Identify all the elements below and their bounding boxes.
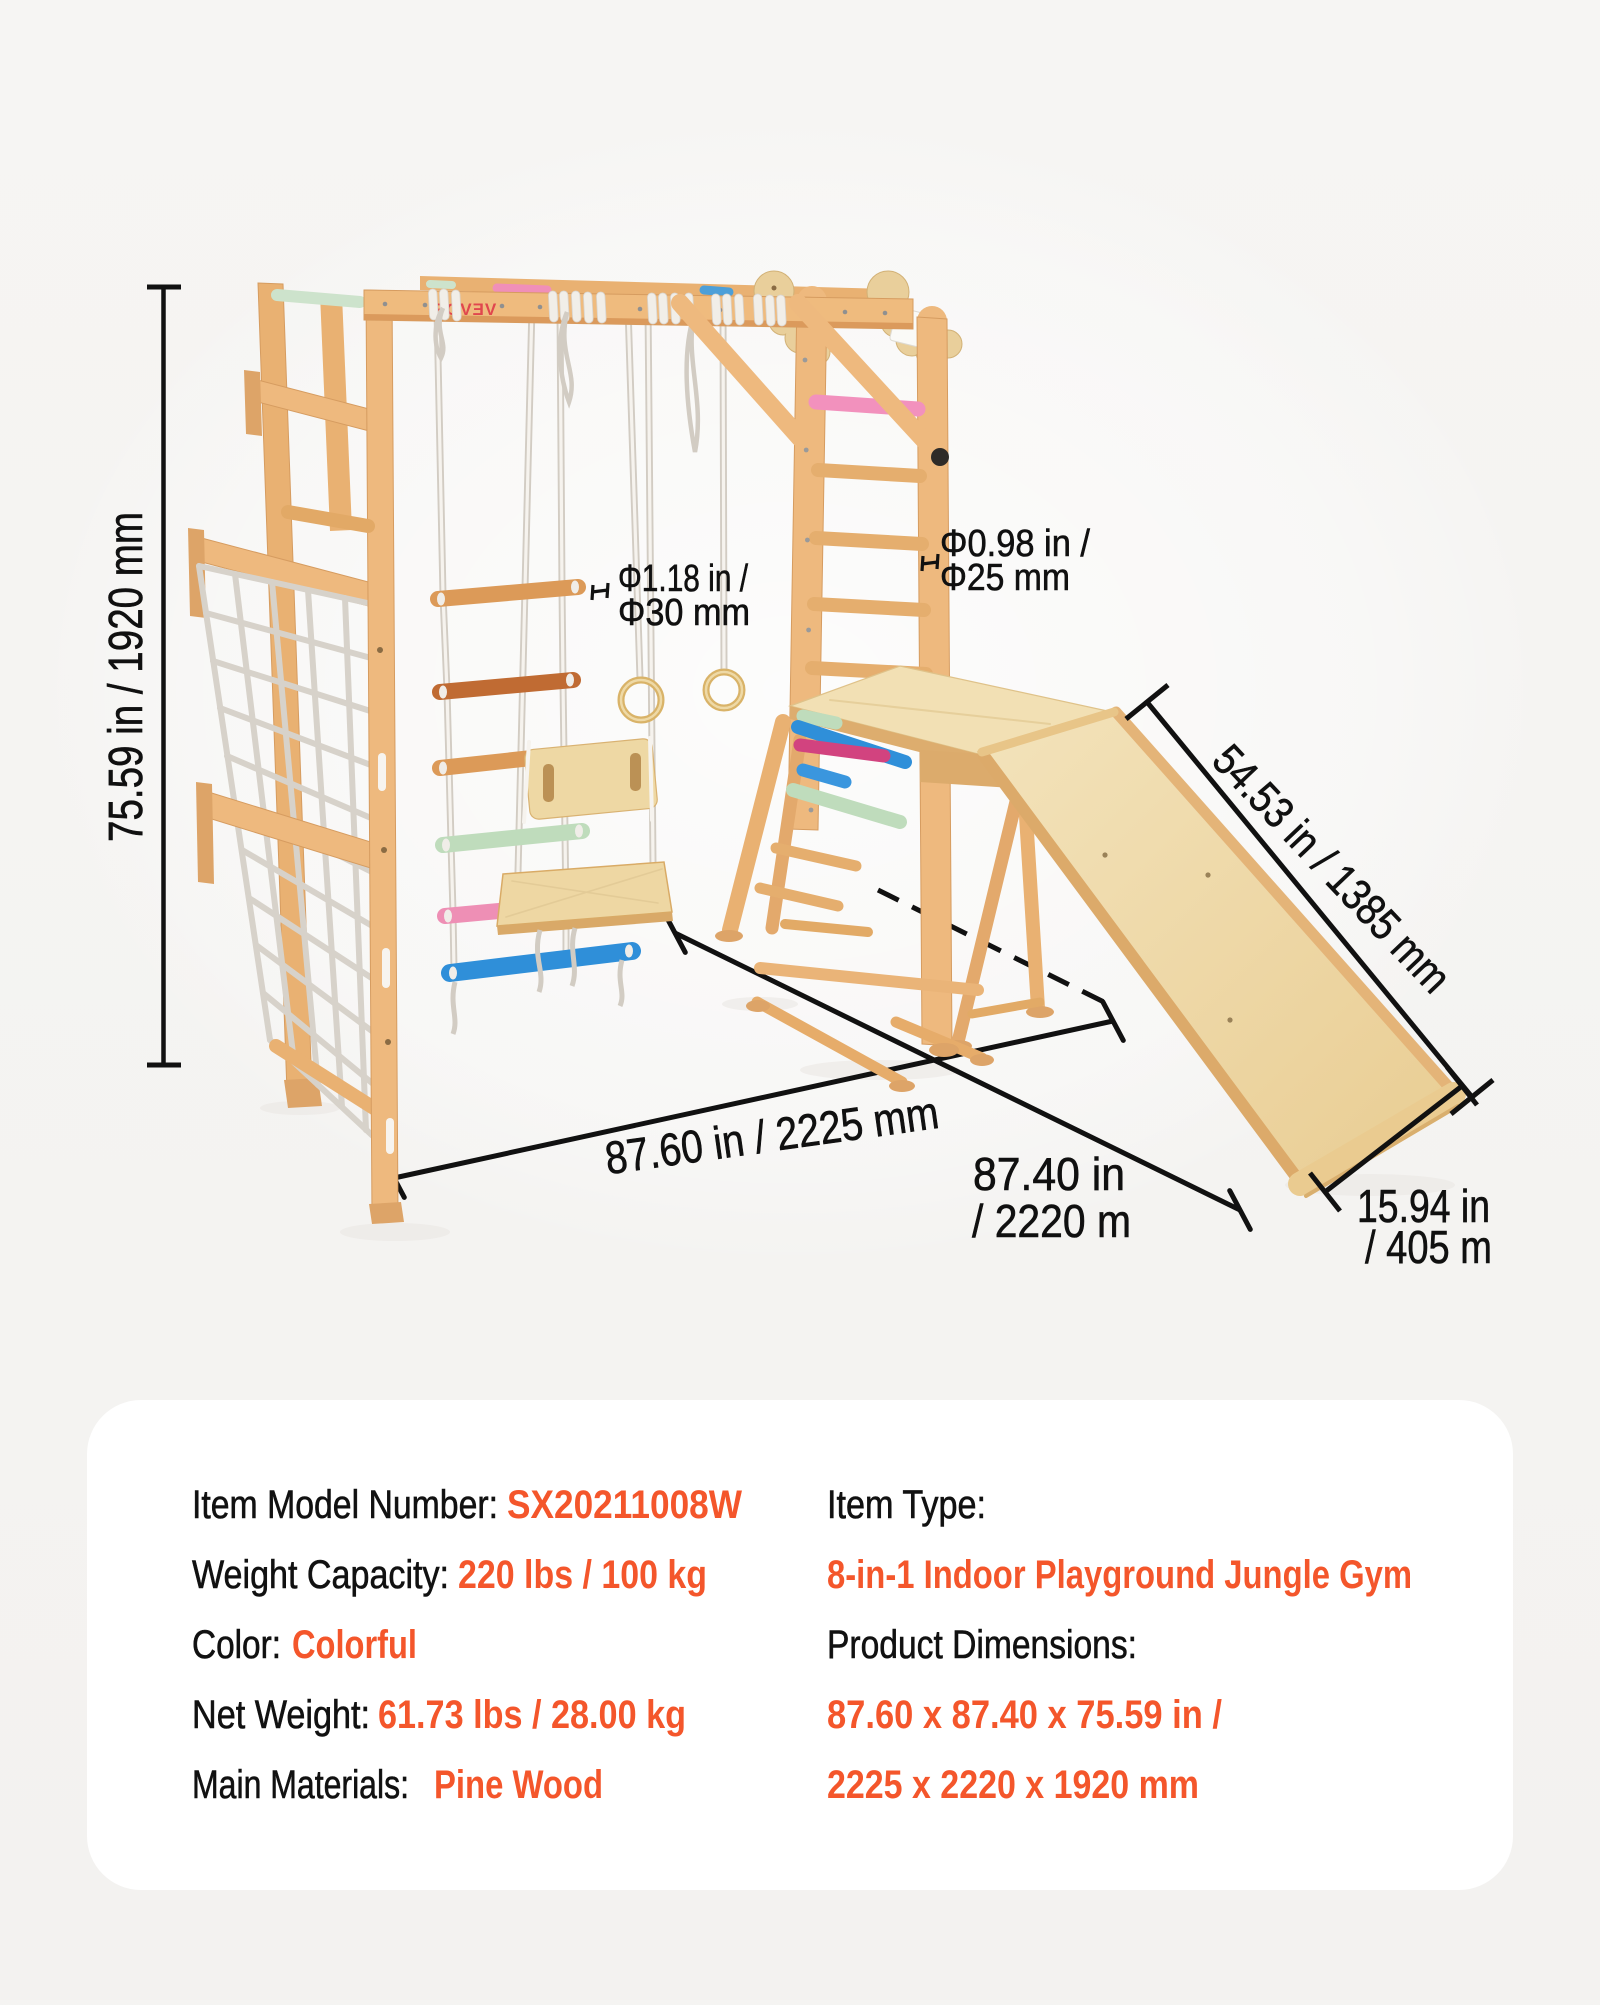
svg-text:8-in-1 Indoor Playground Jungl: 8-in-1 Indoor Playground Jungle Gym [827, 1553, 1412, 1597]
svg-text:SX20211008W: SX20211008W [507, 1483, 742, 1527]
svg-text:75.59 in / 1920 mm: 75.59 in / 1920 mm [100, 512, 153, 842]
svg-text:2225 x 2220 x 1920 mm: 2225 x 2220 x 1920 mm [827, 1763, 1199, 1807]
svg-text:87.60 x 87.40 x 75.59 in /: 87.60 x 87.40 x 75.59 in / [827, 1693, 1222, 1737]
svg-text:220 lbs / 100 kg: 220 lbs / 100 kg [458, 1553, 707, 1597]
svg-text:Weight Capacity:: Weight Capacity: [192, 1553, 449, 1597]
svg-text:/ 2220 m: / 2220 m [972, 1195, 1131, 1247]
svg-text:Color:: Color: [192, 1623, 281, 1667]
svg-text:/ 405 m: / 405 m [1365, 1221, 1492, 1273]
svg-text:61.73 lbs / 28.00 kg: 61.73 lbs / 28.00 kg [378, 1693, 686, 1737]
svg-text:Main Materials:: Main Materials: [192, 1763, 409, 1807]
svg-text:Product Dimensions:: Product Dimensions: [827, 1623, 1137, 1667]
svg-text:87.40 in: 87.40 in [973, 1148, 1125, 1200]
svg-text:Colorful: Colorful [292, 1623, 417, 1667]
svg-text:Φ30 mm: Φ30 mm [618, 592, 750, 634]
svg-text:Net Weight:: Net Weight: [192, 1693, 370, 1737]
svg-text:Item Type:: Item Type: [827, 1483, 986, 1527]
svg-text:Φ25 mm: Φ25 mm [940, 557, 1070, 599]
svg-text:Item Model Number:: Item Model Number: [192, 1483, 498, 1527]
svg-text:Pine Wood: Pine Wood [434, 1763, 603, 1807]
